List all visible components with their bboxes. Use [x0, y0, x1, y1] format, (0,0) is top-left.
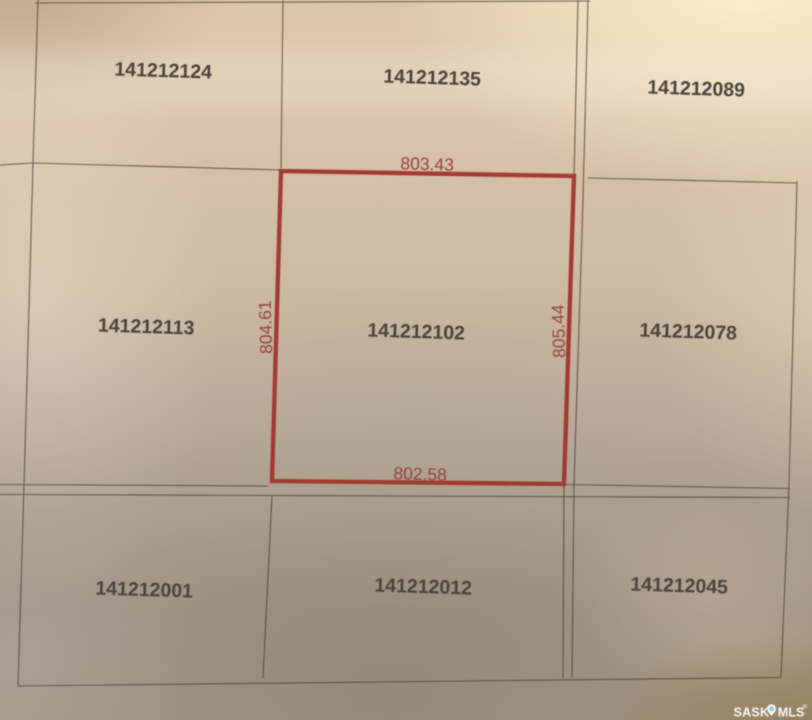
svg-text:141212089: 141212089 [647, 76, 745, 101]
svg-text:141212135: 141212135 [383, 65, 481, 90]
svg-text:141212113: 141212113 [98, 314, 195, 339]
svg-text:141212102: 141212102 [367, 319, 465, 344]
svg-text:804.61: 804.61 [255, 300, 276, 354]
svg-text:141212078: 141212078 [639, 319, 737, 344]
svg-text:141212001: 141212001 [95, 577, 193, 602]
svg-text:141212124: 141212124 [114, 58, 212, 83]
svg-text:®: ® [803, 703, 808, 711]
svg-text:803.43: 803.43 [400, 153, 454, 174]
svg-text:141212045: 141212045 [630, 573, 728, 598]
svg-text:SASK: SASK [734, 706, 770, 720]
svg-text:805.44: 805.44 [548, 304, 570, 358]
svg-text:MLS: MLS [778, 706, 805, 720]
svg-text:141212012: 141212012 [374, 574, 472, 599]
svg-text:802.58: 802.58 [393, 463, 447, 484]
